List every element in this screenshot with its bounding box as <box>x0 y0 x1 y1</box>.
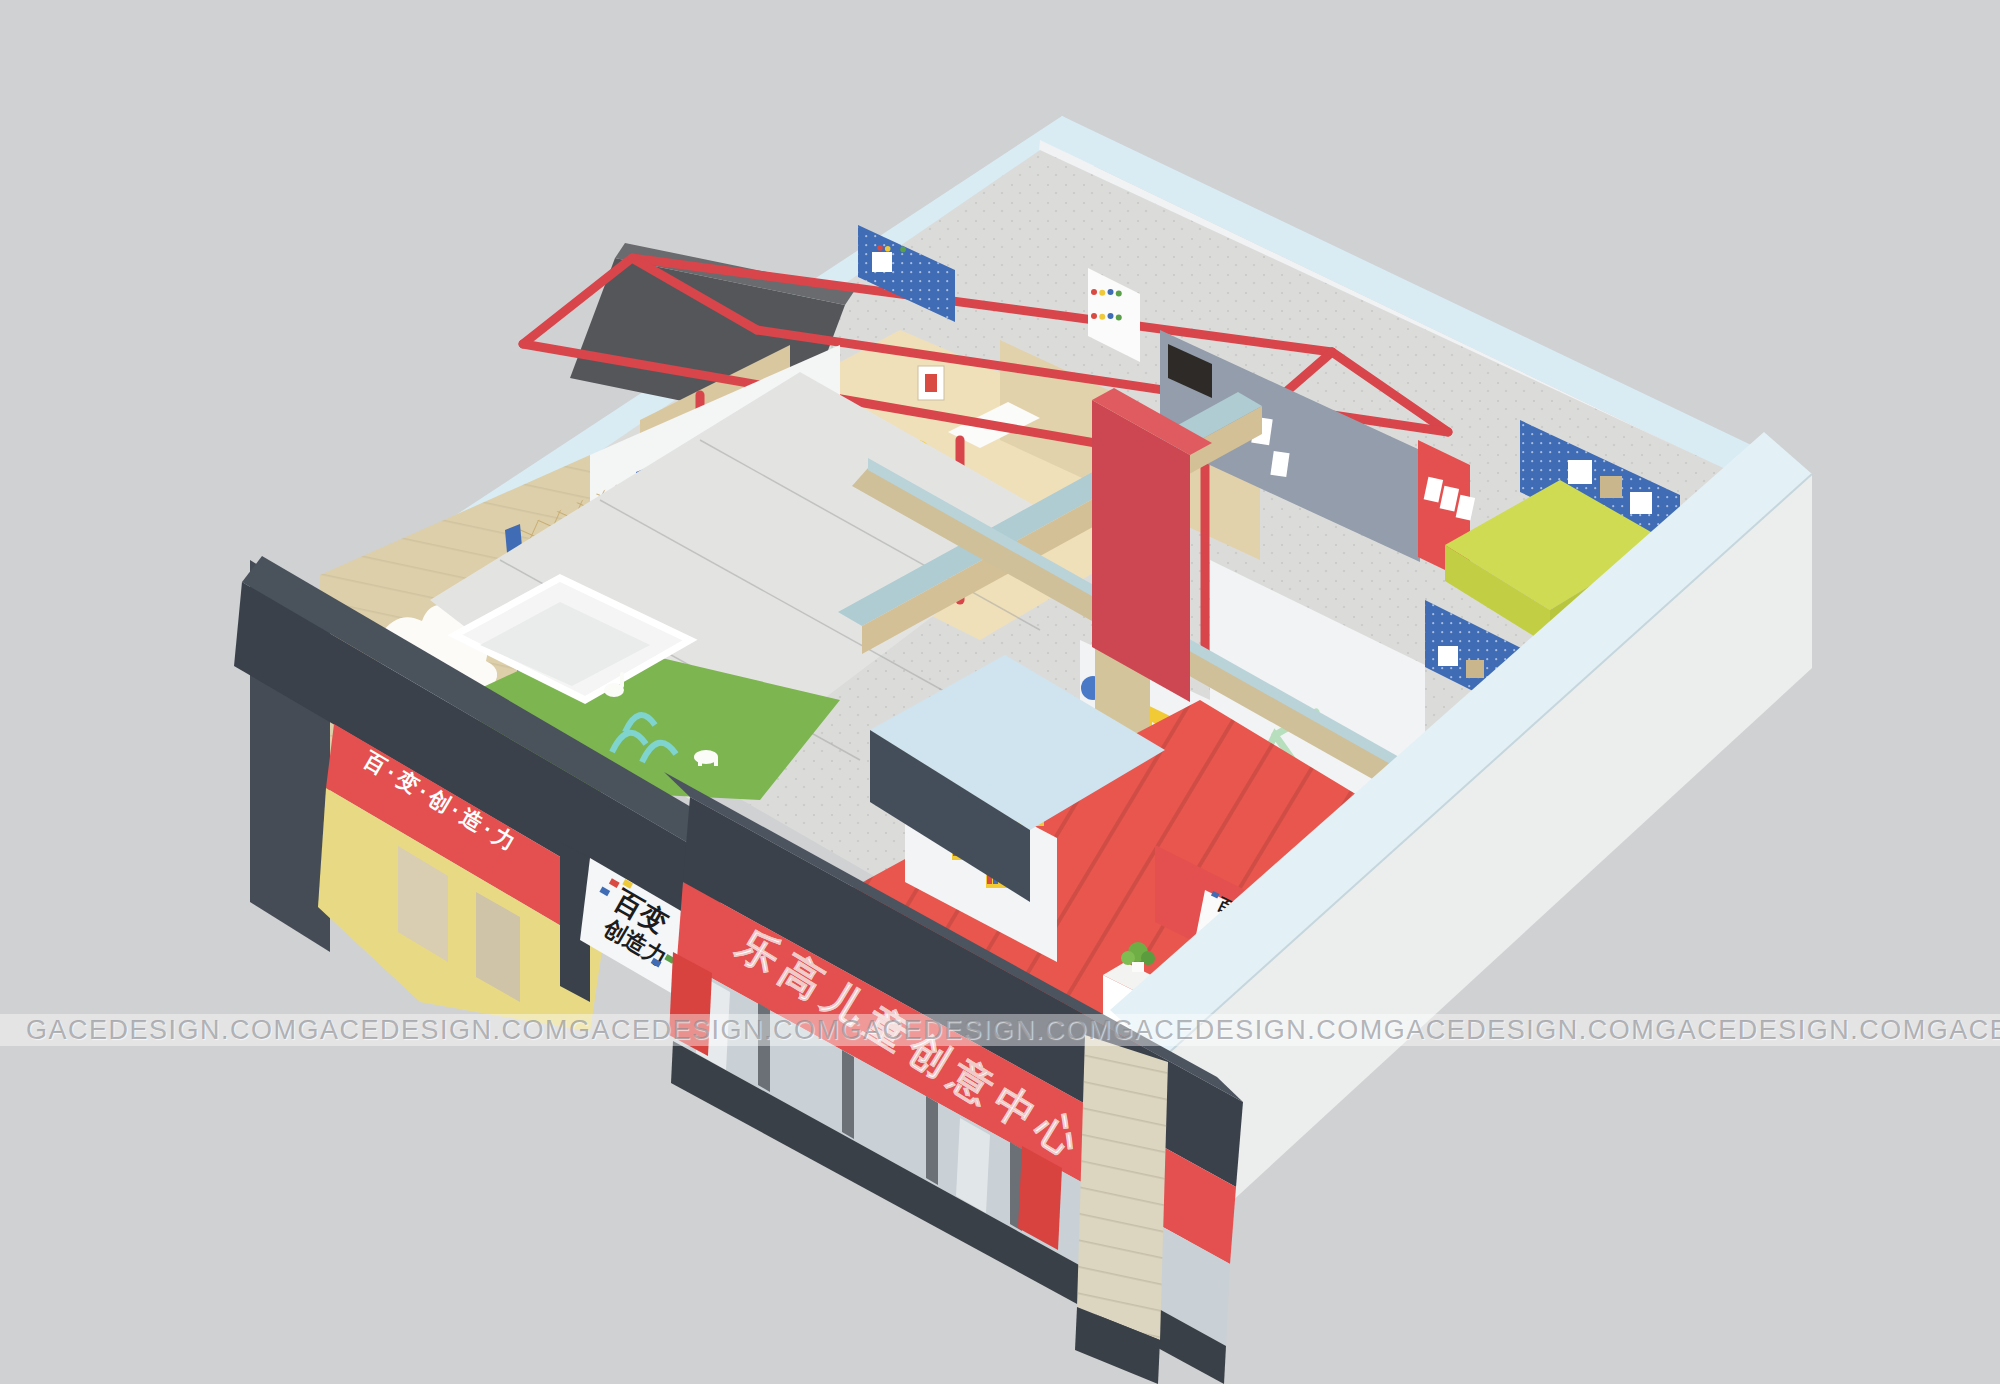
corner-column-joints <box>1077 1035 1168 1340</box>
corridor-poster <box>1270 451 1289 477</box>
goose-neck <box>620 672 624 688</box>
mullion <box>758 1003 770 1092</box>
interior-3d-render: 百变 创造力 <box>0 0 2000 1384</box>
box-shelf <box>1438 646 1458 666</box>
dog-leg <box>698 757 702 766</box>
dog-leg <box>714 757 718 766</box>
box-shelf <box>1568 460 1592 484</box>
box-shelf <box>1630 492 1652 514</box>
box-shelf <box>872 252 892 272</box>
glass-glare <box>956 1118 990 1213</box>
mullion <box>926 1096 938 1185</box>
box-shelf-wood <box>1600 476 1622 498</box>
render-canvas: 百变 创造力 <box>0 0 2000 1384</box>
framed-poster-figure <box>925 374 937 392</box>
mullion <box>842 1050 854 1139</box>
plant-pot <box>1132 962 1144 972</box>
box-shelf-wood <box>1466 660 1484 678</box>
